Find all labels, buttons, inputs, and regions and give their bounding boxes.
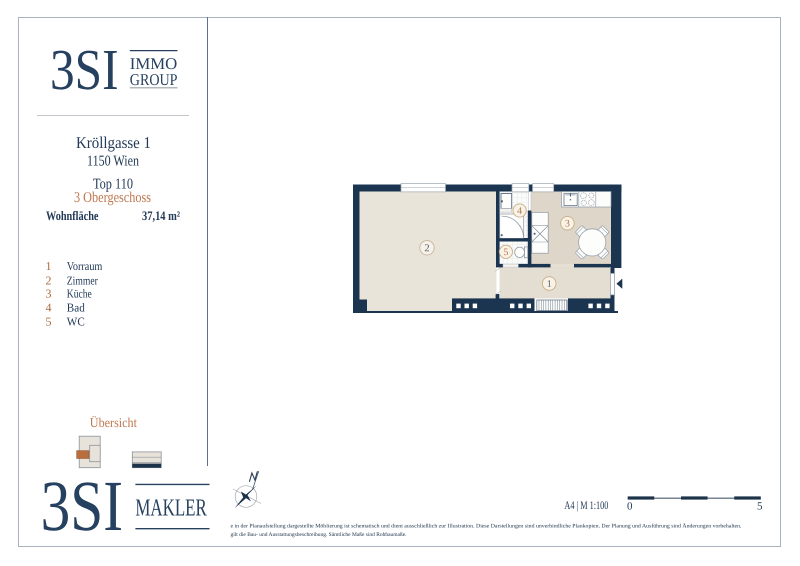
svg-text:3 Obergeschoss: 3 Obergeschoss <box>74 190 151 206</box>
svg-text:Übersicht: Übersicht <box>90 415 137 430</box>
svg-text:2: 2 <box>46 273 52 287</box>
svg-text:5: 5 <box>757 501 763 513</box>
svg-text:5: 5 <box>46 314 52 328</box>
svg-text:0: 0 <box>627 501 633 513</box>
svg-text:gilt die Bau- und Ausstattungs: gilt die Bau- und Ausstattungsbeschreibu… <box>231 532 407 538</box>
svg-text:Küche: Küche <box>67 286 92 300</box>
svg-text:3: 3 <box>46 286 52 300</box>
svg-text:Bad: Bad <box>67 301 85 315</box>
svg-text:e in der Planaufstellung darge: e in der Planaufstellung dargestellte Mö… <box>231 523 742 529</box>
svg-text:MAKLER: MAKLER <box>135 494 207 521</box>
svg-text:37,14 m²: 37,14 m² <box>142 208 180 223</box>
svg-text:1: 1 <box>46 259 52 273</box>
svg-text:3SI: 3SI <box>41 466 123 540</box>
svg-text:A4 | M 1:100: A4 | M 1:100 <box>564 500 608 512</box>
svg-text:Kröllgasse 1: Kröllgasse 1 <box>76 133 151 152</box>
svg-text:Wohnfläche: Wohnfläche <box>46 208 99 223</box>
svg-text:WC: WC <box>67 314 85 328</box>
svg-text:Vorraum: Vorraum <box>67 259 103 273</box>
svg-text:Zimmer: Zimmer <box>67 273 98 287</box>
svg-text:4: 4 <box>46 301 52 315</box>
svg-text:1150 Wien: 1150 Wien <box>87 153 139 169</box>
